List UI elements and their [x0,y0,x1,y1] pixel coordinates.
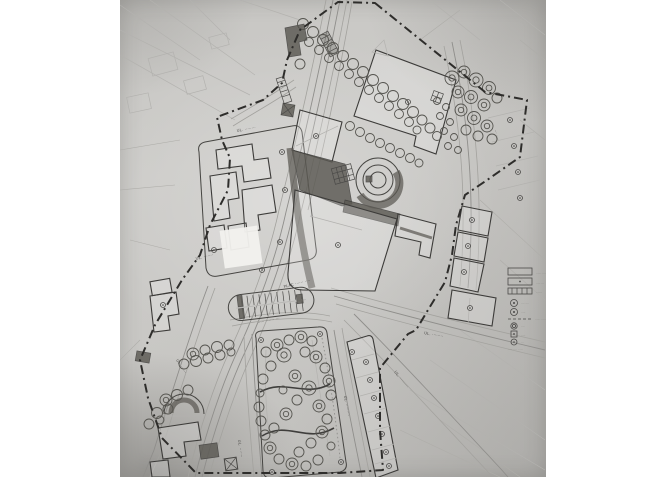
street-label: UL. ········· [343,395,352,416]
street-label: UL. ······· [195,252,214,261]
legend-label: ······ ····· [535,317,546,321]
street-label: ··· ···· [493,129,501,141]
legend-label: ····· ··· [536,281,544,285]
white-patch [220,226,263,269]
street-label: UL. ······· [237,439,244,457]
planned-complex [276,24,456,291]
site-plan-drawing: UL. ········ UL. ······· PLAC ······ ···… [0,0,658,487]
map-legend: ······ ····· ····· ··· ······· ···· ····… [508,268,547,351]
street-label: UL. ········ [424,330,444,339]
street-label: UL. ········· [393,370,410,389]
legend-caption: ····· ···· · ···· [508,347,523,351]
legend-rect-outline [508,268,532,275]
legend-label: ····· [521,333,526,337]
legend-label: ···· [521,324,525,328]
street-label: UL. ······ [175,358,188,375]
legend-label: ··· [521,340,524,344]
legend-label: ···· ···· [521,301,529,305]
street-label: UL. ········ [236,125,256,133]
legend-label: ······· [536,290,542,294]
terraced-row [347,336,398,478]
legend-label: ····· [521,310,526,314]
rotunda [356,158,400,205]
legend-circle-ring [511,323,517,329]
site-plan-photo-page: UL. ········ UL. ······· PLAC ······ ···… [0,0,658,487]
legend-label: ······ ····· [536,271,547,275]
legend-rect-hatched [508,288,532,294]
trees-negrove [445,66,502,144]
